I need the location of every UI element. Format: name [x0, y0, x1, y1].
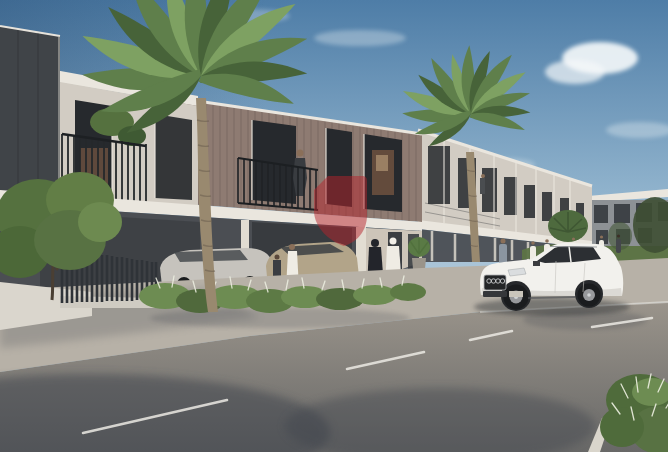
- license-plate: [509, 291, 523, 297]
- roof-rail: [550, 247, 597, 248]
- charcoal-wall: [0, 26, 60, 200]
- townhouse-street-photo: [0, 0, 668, 452]
- wall-art: [376, 155, 388, 171]
- scene-canvas: [0, 0, 668, 452]
- car-shadow: [474, 298, 630, 316]
- front-bumper-trim: [483, 291, 507, 297]
- window-2: [155, 114, 192, 200]
- side-mirror: [533, 261, 540, 266]
- sill-shadow: [528, 297, 575, 298]
